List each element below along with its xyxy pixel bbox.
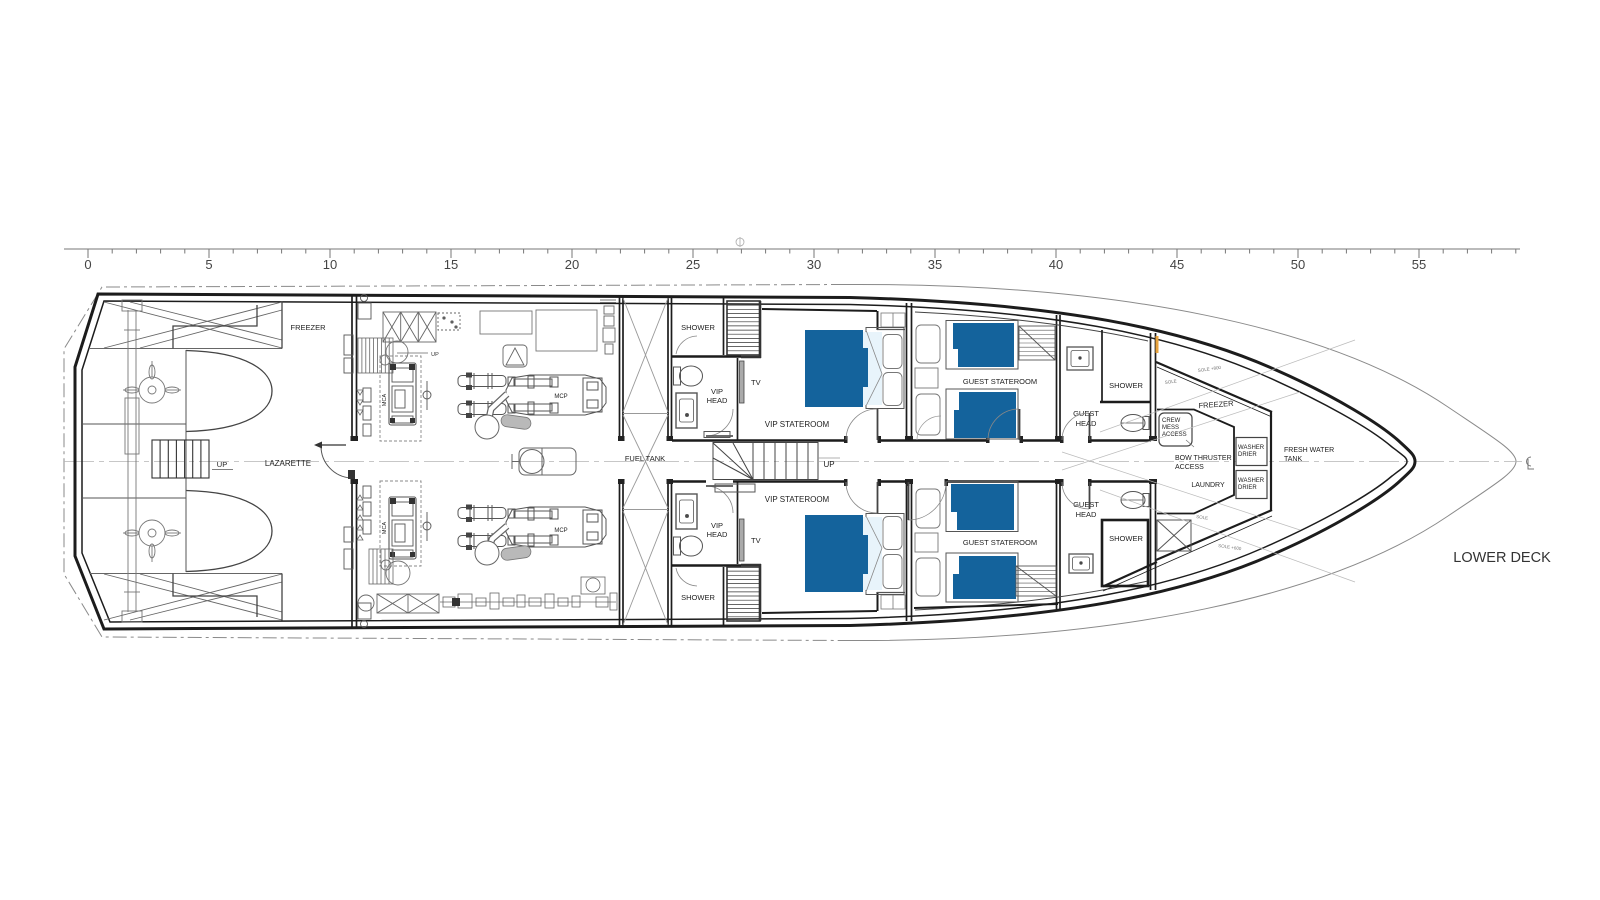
svg-text:25: 25 bbox=[686, 257, 700, 272]
svg-text:GUESTHEAD: GUESTHEAD bbox=[1073, 409, 1099, 428]
svg-text:SHOWER: SHOWER bbox=[1109, 534, 1143, 543]
svg-text:VIP STATEROOM: VIP STATEROOM bbox=[765, 495, 830, 504]
svg-text:SOLE: SOLE bbox=[1196, 514, 1209, 521]
svg-text:MCA: MCA bbox=[382, 522, 388, 535]
svg-text:LOWER DECK: LOWER DECK bbox=[1453, 550, 1551, 566]
svg-text:MCP: MCP bbox=[554, 394, 567, 400]
svg-text:35: 35 bbox=[928, 257, 942, 272]
svg-text:MCA: MCA bbox=[382, 394, 388, 407]
svg-text:GUESTHEAD: GUESTHEAD bbox=[1073, 500, 1099, 519]
svg-text:TV: TV bbox=[751, 536, 761, 545]
svg-text:SHOWER: SHOWER bbox=[681, 593, 715, 602]
svg-text:VIP STATEROOM: VIP STATEROOM bbox=[765, 420, 830, 429]
svg-text:FREEZER: FREEZER bbox=[290, 323, 326, 332]
svg-text:5: 5 bbox=[205, 257, 212, 272]
svg-text:UP: UP bbox=[823, 460, 834, 469]
svg-text:55: 55 bbox=[1412, 257, 1426, 272]
svg-text:LAZARETTE: LAZARETTE bbox=[265, 459, 311, 468]
svg-text:SHOWER: SHOWER bbox=[681, 323, 715, 332]
svg-text:FRESH WATERTANK: FRESH WATERTANK bbox=[1284, 447, 1334, 463]
svg-text:SHOWER: SHOWER bbox=[1109, 381, 1143, 390]
svg-text:VIPHEAD: VIPHEAD bbox=[707, 387, 728, 405]
svg-text:10: 10 bbox=[323, 257, 337, 272]
svg-text:FREEZER: FREEZER bbox=[1198, 399, 1234, 410]
svg-text:50: 50 bbox=[1291, 257, 1305, 272]
svg-text:UP: UP bbox=[431, 352, 439, 358]
svg-text:SOLE: SOLE bbox=[1164, 378, 1177, 385]
svg-text:45: 45 bbox=[1170, 257, 1184, 272]
svg-text:SOLE +600: SOLE +600 bbox=[1218, 543, 1242, 551]
svg-text:MCP: MCP bbox=[554, 528, 567, 534]
svg-text:TV: TV bbox=[751, 378, 761, 387]
svg-text:GUEST STATEROOM: GUEST STATEROOM bbox=[963, 377, 1037, 386]
svg-text:UP: UP bbox=[217, 460, 227, 469]
svg-text:LAUNDRY: LAUNDRY bbox=[1191, 482, 1225, 489]
svg-text:SOLE +800: SOLE +800 bbox=[1197, 365, 1221, 373]
svg-text:FUEL TANK: FUEL TANK bbox=[625, 454, 665, 463]
svg-text:0: 0 bbox=[84, 257, 91, 272]
svg-text:GUEST STATEROOM: GUEST STATEROOM bbox=[963, 538, 1037, 547]
svg-text:30: 30 bbox=[807, 257, 821, 272]
svg-text:VIPHEAD: VIPHEAD bbox=[707, 521, 728, 539]
svg-text:BOW THRUSTERACCESS: BOW THRUSTERACCESS bbox=[1175, 455, 1232, 471]
svg-text:40: 40 bbox=[1049, 257, 1063, 272]
svg-text:20: 20 bbox=[565, 257, 579, 272]
svg-text:15: 15 bbox=[444, 257, 458, 272]
